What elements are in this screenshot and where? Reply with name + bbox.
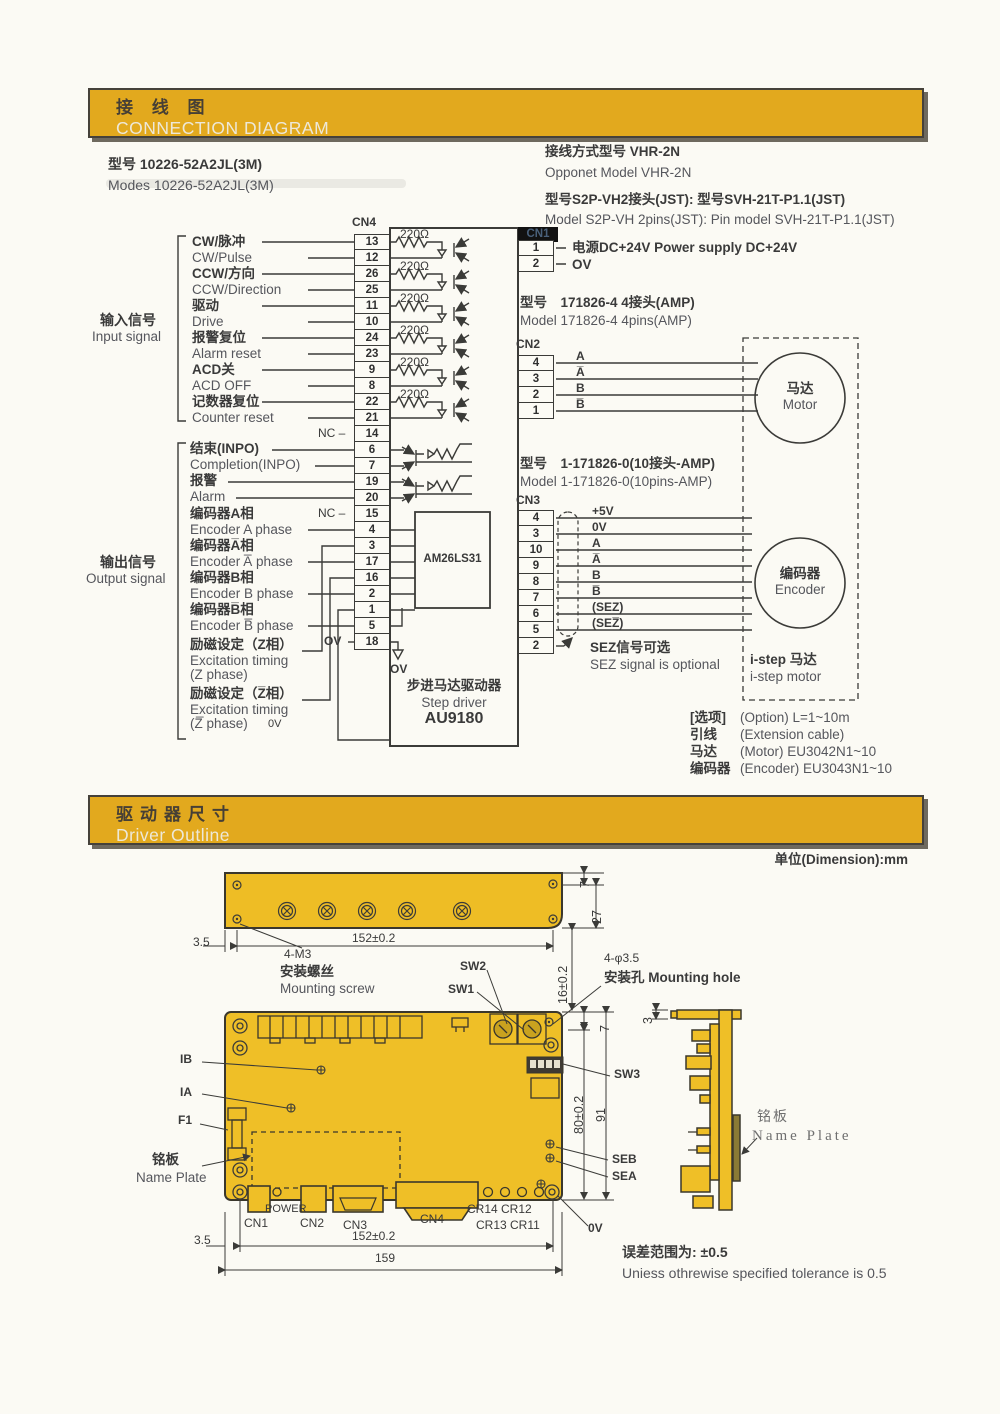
input-group-zh: 输入信号 [100,312,156,328]
pin-1: 1 [518,240,554,256]
pin-18: 18 [354,634,390,650]
signal-counterreset-zh: 记数器复位 [192,394,260,410]
pin-12: 12 [354,250,390,266]
cn3-pin-column: 4310987652 [518,510,554,654]
option-row-3-en: (Encoder) EU3043N1~10 [740,761,892,777]
option-row-0-en: (Option) L=1~10m [740,710,850,726]
encoder-zh: 编码器 [755,566,845,582]
pin-22: 22 [354,394,390,410]
zero-volt-board: 0V [588,1222,603,1236]
dim-7-top: 7 [578,881,592,888]
pin-13: 13 [354,234,390,250]
signal-completion-en: Completion(INPO) [190,457,300,473]
cn4-label: CN4 [352,216,376,230]
tolerance-en: Uniess othrewise specified tolerance is … [622,1265,887,1281]
opponent-model-zh: 接线方式型号 VHR-2N [545,144,680,160]
cn3-sig-abar: A̅ [592,553,601,567]
output-group-zh: 输出信号 [100,554,156,570]
pin-14: 14 [354,426,390,442]
motor-en: Motor [755,397,845,413]
mounting-screw-zh: 安装螺丝 [280,964,334,980]
signal-enc-bbar-en: Encoder B̅ phase [190,618,294,634]
signal-enc-b-en: Encoder B phase [190,586,294,602]
resistor-value: 220Ω [400,324,429,338]
signal-enc-a-en: Encoder A phase [190,522,292,538]
pin-4: 4 [518,355,554,371]
section2-title-zh: 驱动器尺寸 [116,800,922,825]
pin-9: 9 [354,362,390,378]
pin-2: 2 [518,638,554,654]
nameplate-board-zh: 铭板 [152,1152,179,1168]
sw2-label: SW2 [460,960,486,974]
sw3-label: SW3 [614,1068,640,1082]
pin-2: 2 [518,256,554,272]
signal-ccw-en: CCW/Direction [192,282,281,298]
pin-7: 7 [354,458,390,474]
istep-en: i-step motor [750,669,821,685]
signal-excit-z-zh: 励磁设定（Z相） [190,637,293,653]
section2-banner: 驱动器尺寸 Driver Outline [88,795,924,845]
ib-label: IB [180,1053,192,1067]
tolerance-zh: 误差范围为: ±0.5 [622,1244,728,1260]
resistor-value: 220Ω [400,292,429,306]
cn3-sig-sezbar: (SEZ̅) [592,617,623,631]
mounting-hole-label: 安装孔 Mounting hole [604,970,740,986]
manual-page: 接 线 图 CONNECTION DIAGRAM 型号 10226-52A2JL… [0,0,1000,1414]
dim-3p5-bottom: 3.5 [194,1234,211,1248]
pin-16: 16 [354,570,390,586]
sez-note-en: SEZ signal is optional [590,657,720,673]
pin-4: 4 [354,522,390,538]
pin-4: 4 [518,510,554,526]
signal-acd-en: ACD OFF [192,378,251,394]
zero-volt-small: 0V [268,718,281,731]
encoder-en: Encoder [755,582,845,598]
pin-1: 1 [518,403,554,419]
pin-1: 1 [354,602,390,618]
option-row-0-zh: [选项] [690,710,726,726]
section1-title-zh: 接 线 图 [116,93,922,118]
input-group-en: Input signal [92,329,161,345]
nc-label-14: NC – [318,427,345,441]
jst-model-en: Model S2P-VH 2pins(JST): Pin model SVH-2… [545,212,895,228]
cn3-sig-sez: (SEZ) [592,601,623,615]
resistor-value: 220Ω [400,260,429,274]
signal-enc-a-zh: 编码器A相 [190,506,254,522]
signal-enc-b-zh: 编码器B相 [190,570,254,586]
pin-20: 20 [354,490,390,506]
pin-6: 6 [354,442,390,458]
dim-3-side: 3 [641,1017,655,1024]
istep-zh: i-step 马达 [750,652,817,668]
cn2-sig-b: B [576,382,585,396]
pin-7: 7 [518,590,554,606]
cn3-sig-a: A [592,537,601,551]
signal-enc-bbar-zh: 编码器B̅相 [190,602,254,618]
cn3-sig-bbar: B̅ [592,585,601,599]
signal-acd-zh: ACD关 [192,362,235,378]
pin-2: 2 [518,387,554,403]
amp10-model-en: Model 1-171826-0(10pins-AMP) [520,474,712,490]
driver-model: AU9180 [390,710,518,728]
signal-alarm-en: Alarm [190,489,225,505]
amp4-model-en: Model 171826-4 4pins(AMP) [520,313,692,329]
cn2-label: CN2 [516,338,540,352]
power-label: POWER [265,1203,307,1216]
dim-3p5-top: 3.5 [193,936,210,950]
f1-label: F1 [178,1114,192,1128]
dim-152-top: 152±0.2 [352,932,395,946]
resistor-value: 220Ω [400,388,429,402]
pin-21: 21 [354,410,390,426]
signal-counterreset-en: Counter reset [192,410,274,426]
model-number-zh: 型号 10226-52A2JL(3M) [108,156,262,172]
cn1-pin-column: 12 [518,240,554,272]
cn1-conn-label: CN1 [244,1217,268,1231]
sea-label: SEA [612,1170,637,1184]
amp10-model-zh: 型号 1-171826-0(10接头-AMP) [520,456,715,472]
seb-label: SEB [612,1153,637,1167]
driver-name-zh: 步进马达驱动器 [390,678,518,694]
pin-19: 19 [354,474,390,490]
pin-3: 3 [518,526,554,542]
jst-model-zh: 型号S2P-VH2接头(JST): 型号SVH-21T-P1.1(JST) [545,192,845,208]
section1-title-en: CONNECTION DIAGRAM [116,118,922,139]
option-row-1-zh: 引线 [690,727,717,743]
cn4-conn-label: CN4 [420,1213,444,1227]
cn1-pin1-desc: 电源DC+24V Power supply DC+24V [572,240,797,256]
cn2-sig-abar: A̅ [576,366,585,380]
option-row-3-zh: 编码器 [690,761,731,777]
pin-5: 5 [518,622,554,638]
section1-banner: 接 线 图 CONNECTION DIAGRAM [88,88,924,138]
ov-ground-label: OV [390,663,407,677]
option-row-2-zh: 马达 [690,744,717,760]
pin-26: 26 [354,266,390,282]
amp4-model-zh: 型号 171826-4 4接头(AMP) [520,295,695,311]
pin-8: 8 [354,378,390,394]
sez-note-zh: SEZ信号可选 [590,640,670,656]
cr-row1-label: CR14 CR12 [467,1203,532,1217]
resistor-value: 220Ω [400,228,429,242]
pin-25: 25 [354,282,390,298]
pin-6: 6 [518,606,554,622]
signal-alarmreset-zh: 报警复位 [192,330,246,346]
pin-9: 9 [518,558,554,574]
pin-10: 10 [518,542,554,558]
dim-152-bottom: 152±0.2 [352,1230,395,1244]
signal-excit-z-en2: (Z phase) [190,667,248,683]
sw1-label: SW1 [448,983,474,997]
nc-label-15: NC – [318,507,345,521]
cn3-sig-5v: +5V [592,505,614,519]
pin-2: 2 [354,586,390,602]
signal-alarm-zh: 报警 [190,473,217,489]
pin-17: 17 [354,554,390,570]
signal-drive-en: Drive [192,314,224,330]
pin-3: 3 [354,538,390,554]
signal-excit-zbar-en2: (Z̅ phase) [190,716,248,732]
pin-8: 8 [518,574,554,590]
option-row-1-en: (Extension cable) [740,727,844,743]
pin-5: 5 [354,618,390,634]
section2-title-en: Driver Outline [116,825,922,846]
motor-zh: 马达 [755,381,845,397]
dim-80: 80±0.2 [572,1096,586,1134]
nameplate-board-en: Name Plate [136,1170,207,1186]
nameplate-side-en: Name Plate [752,1128,852,1145]
output-group-en: Output signal [86,571,166,587]
cn3-label: CN3 [516,494,540,508]
mounting-screw-en: Mounting screw [280,981,375,997]
hole-dia-label: 4-φ3.5 [604,952,639,966]
dim-159: 159 [375,1252,395,1266]
pin-11: 11 [354,298,390,314]
pin-23: 23 [354,346,390,362]
cn2-sig-bbar: B̅ [576,398,585,412]
pin-15: 15 [354,506,390,522]
signal-alarmreset-en: Alarm reset [192,346,261,362]
unit-note: 单位(Dimension):mm [700,852,908,868]
signal-ccw-zh: CCW/方向 [192,266,255,282]
pin-10: 10 [354,314,390,330]
driver-name-en: Step driver [390,695,518,711]
dim-27: 27 [590,910,604,924]
m3-label: 4-M3 [284,948,311,962]
signal-enc-abar-zh: 编码器A̅相 [190,538,254,554]
dim-91: 91 [594,1108,608,1122]
pin-3: 3 [518,371,554,387]
cn2-sig-a: A [576,350,585,364]
ia-label: IA [180,1086,192,1100]
resistor-value: 220Ω [400,356,429,370]
cn2-conn-label: CN2 [300,1217,324,1231]
cr-row2-label: CR13 CR11 [476,1219,540,1233]
chip-label: AM26LS31 [415,553,490,566]
opponent-model-en: Opponet Model VHR-2N [545,165,691,181]
signal-cw-en: CW/Pulse [192,250,252,266]
cn3-sig-0v: 0V [592,521,607,535]
signal-completion-zh: 结束(INPO) [190,441,259,457]
nameplate-side-zh: 铭板 [757,1110,789,1126]
signal-enc-abar-en: Encoder A̅ phase [190,554,293,570]
model-number-en: Modes 10226-52A2JL(3M) [108,177,274,193]
ov-left-label: OV [324,635,341,649]
dim-16: 16±0.2 [556,966,570,1004]
cn2-pin-column: 4321 [518,355,554,419]
option-row-2-en: (Motor) EU3042N1~10 [740,744,876,760]
signal-cw-zh: CW/脉冲 [192,234,245,250]
dim-7-board: 7 [598,1025,612,1032]
cn4-pin-column: 1312262511102423982221146719201543171621… [354,234,390,650]
cn3-sig-b: B [592,569,601,583]
signal-excit-zbar-zh: 励磁设定（Z̅相） [190,686,293,702]
pin-24: 24 [354,330,390,346]
signal-drive-zh: 驱动 [192,298,219,314]
cn1-pin2-desc: OV [572,257,592,273]
